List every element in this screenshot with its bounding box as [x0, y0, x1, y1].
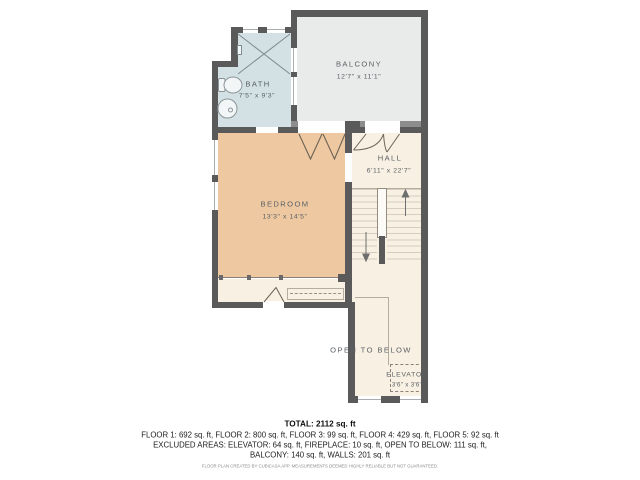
- opening-bedroom-hall: [345, 153, 352, 182]
- floor-plan-canvas: BALCONY 12'7" x 11'1" BATH 7'5" x 9'3" B…: [0, 0, 640, 480]
- bedroom-dims: 13'3" x 14'5": [262, 214, 307, 221]
- elevator-label: ELEVATOR: [386, 372, 428, 379]
- window-glass-line: [293, 48, 294, 72]
- window-glass-line: [243, 29, 258, 30]
- open-to-below-label: OPEN TO BELOW: [330, 346, 412, 355]
- wall-hall-top-a: [360, 127, 365, 133]
- wall-right: [421, 10, 428, 403]
- door-threshold-bedroom-balcony: [298, 121, 345, 133]
- wall-bath-top-c: [285, 27, 297, 33]
- bath-floor-lower: [218, 66, 234, 127]
- window-glass-line: [267, 29, 285, 30]
- bedroom-label: BEDROOM: [260, 200, 309, 209]
- window-bath-top-2: [267, 27, 285, 33]
- wall-hall-top-b: [400, 127, 421, 133]
- window-balcony-left-2: [291, 77, 297, 105]
- bath-label: BATH: [245, 80, 270, 89]
- wall-bottom-a: [348, 396, 358, 403]
- wall-left-b: [212, 175, 218, 182]
- door-threshold-bath: [256, 127, 278, 133]
- balcony-floor: [297, 17, 421, 121]
- wall-deck-right-stub: [338, 274, 348, 282]
- window-bedroom-left-2: [212, 182, 218, 210]
- elevator-dims: 3'6" x 3'6": [392, 382, 422, 389]
- wall-balcony-top: [291, 10, 428, 17]
- total-area-text: TOTAL: 2112 sq. ft: [284, 420, 355, 429]
- window-glass-line: [400, 399, 421, 400]
- wall-deck-bottom-b: [284, 302, 355, 308]
- fireplace-dashed-line: [290, 293, 341, 294]
- post-tick: [219, 275, 223, 280]
- wall-bath-bottom-b: [278, 127, 298, 133]
- wall-bath-bottom-a: [212, 127, 256, 133]
- balcony-dims: 12'7" x 11'1": [337, 74, 382, 81]
- wall-deck-bottom-a: [212, 302, 263, 308]
- balcony-label: BALCONY: [336, 60, 382, 69]
- post-tick: [247, 275, 251, 280]
- excluded-areas-text-2: BALCONY: 140 sq. ft, WALLS: 201 sq. ft: [250, 451, 390, 460]
- excluded-areas-text-1: EXCLUDED AREAS: ELEVATOR: 64 sq. ft, FIR…: [153, 441, 487, 450]
- hall-label: HALL: [378, 154, 403, 163]
- stairs-stringer: [377, 188, 387, 238]
- wall-divider-b: [345, 182, 352, 308]
- window-glass-line: [214, 182, 215, 210]
- disclaimer-text: FLOOR PLAN CREATED BY CUBICASA APP. MEAS…: [202, 464, 438, 469]
- stairs-right-flight: [387, 189, 421, 264]
- door-threshold-deck: [263, 301, 284, 309]
- wall-left-a: [212, 61, 218, 140]
- window-bath-top-1: [243, 27, 258, 33]
- wall-left-c: [212, 210, 218, 308]
- window-bedroom-left-1: [212, 140, 218, 175]
- bath-dims: 7'5" x 9'3": [239, 93, 275, 100]
- fireplace: [287, 288, 344, 300]
- post-tick: [279, 275, 283, 280]
- open-below-line-v: [388, 297, 389, 365]
- hall-dims: 6'11" x 22'7": [367, 168, 412, 175]
- stairs-stringer-bar: [379, 236, 385, 264]
- wall-divider-a: [345, 133, 352, 153]
- floor-areas-text: FLOOR 1: 692 sq. ft, FLOOR 2: 800 sq. ft…: [141, 431, 499, 440]
- wall-bath-top-b: [258, 27, 267, 33]
- window-glass-line: [214, 140, 215, 175]
- wall-bottom-b: [381, 396, 400, 403]
- open-below-line-h: [355, 297, 388, 298]
- window-glass-line: [358, 399, 381, 400]
- window-glass-line: [293, 77, 294, 105]
- stairs-left-flight: [352, 189, 377, 264]
- window-balcony-left-1: [291, 48, 297, 72]
- door-threshold-hall-balcony: [365, 121, 400, 133]
